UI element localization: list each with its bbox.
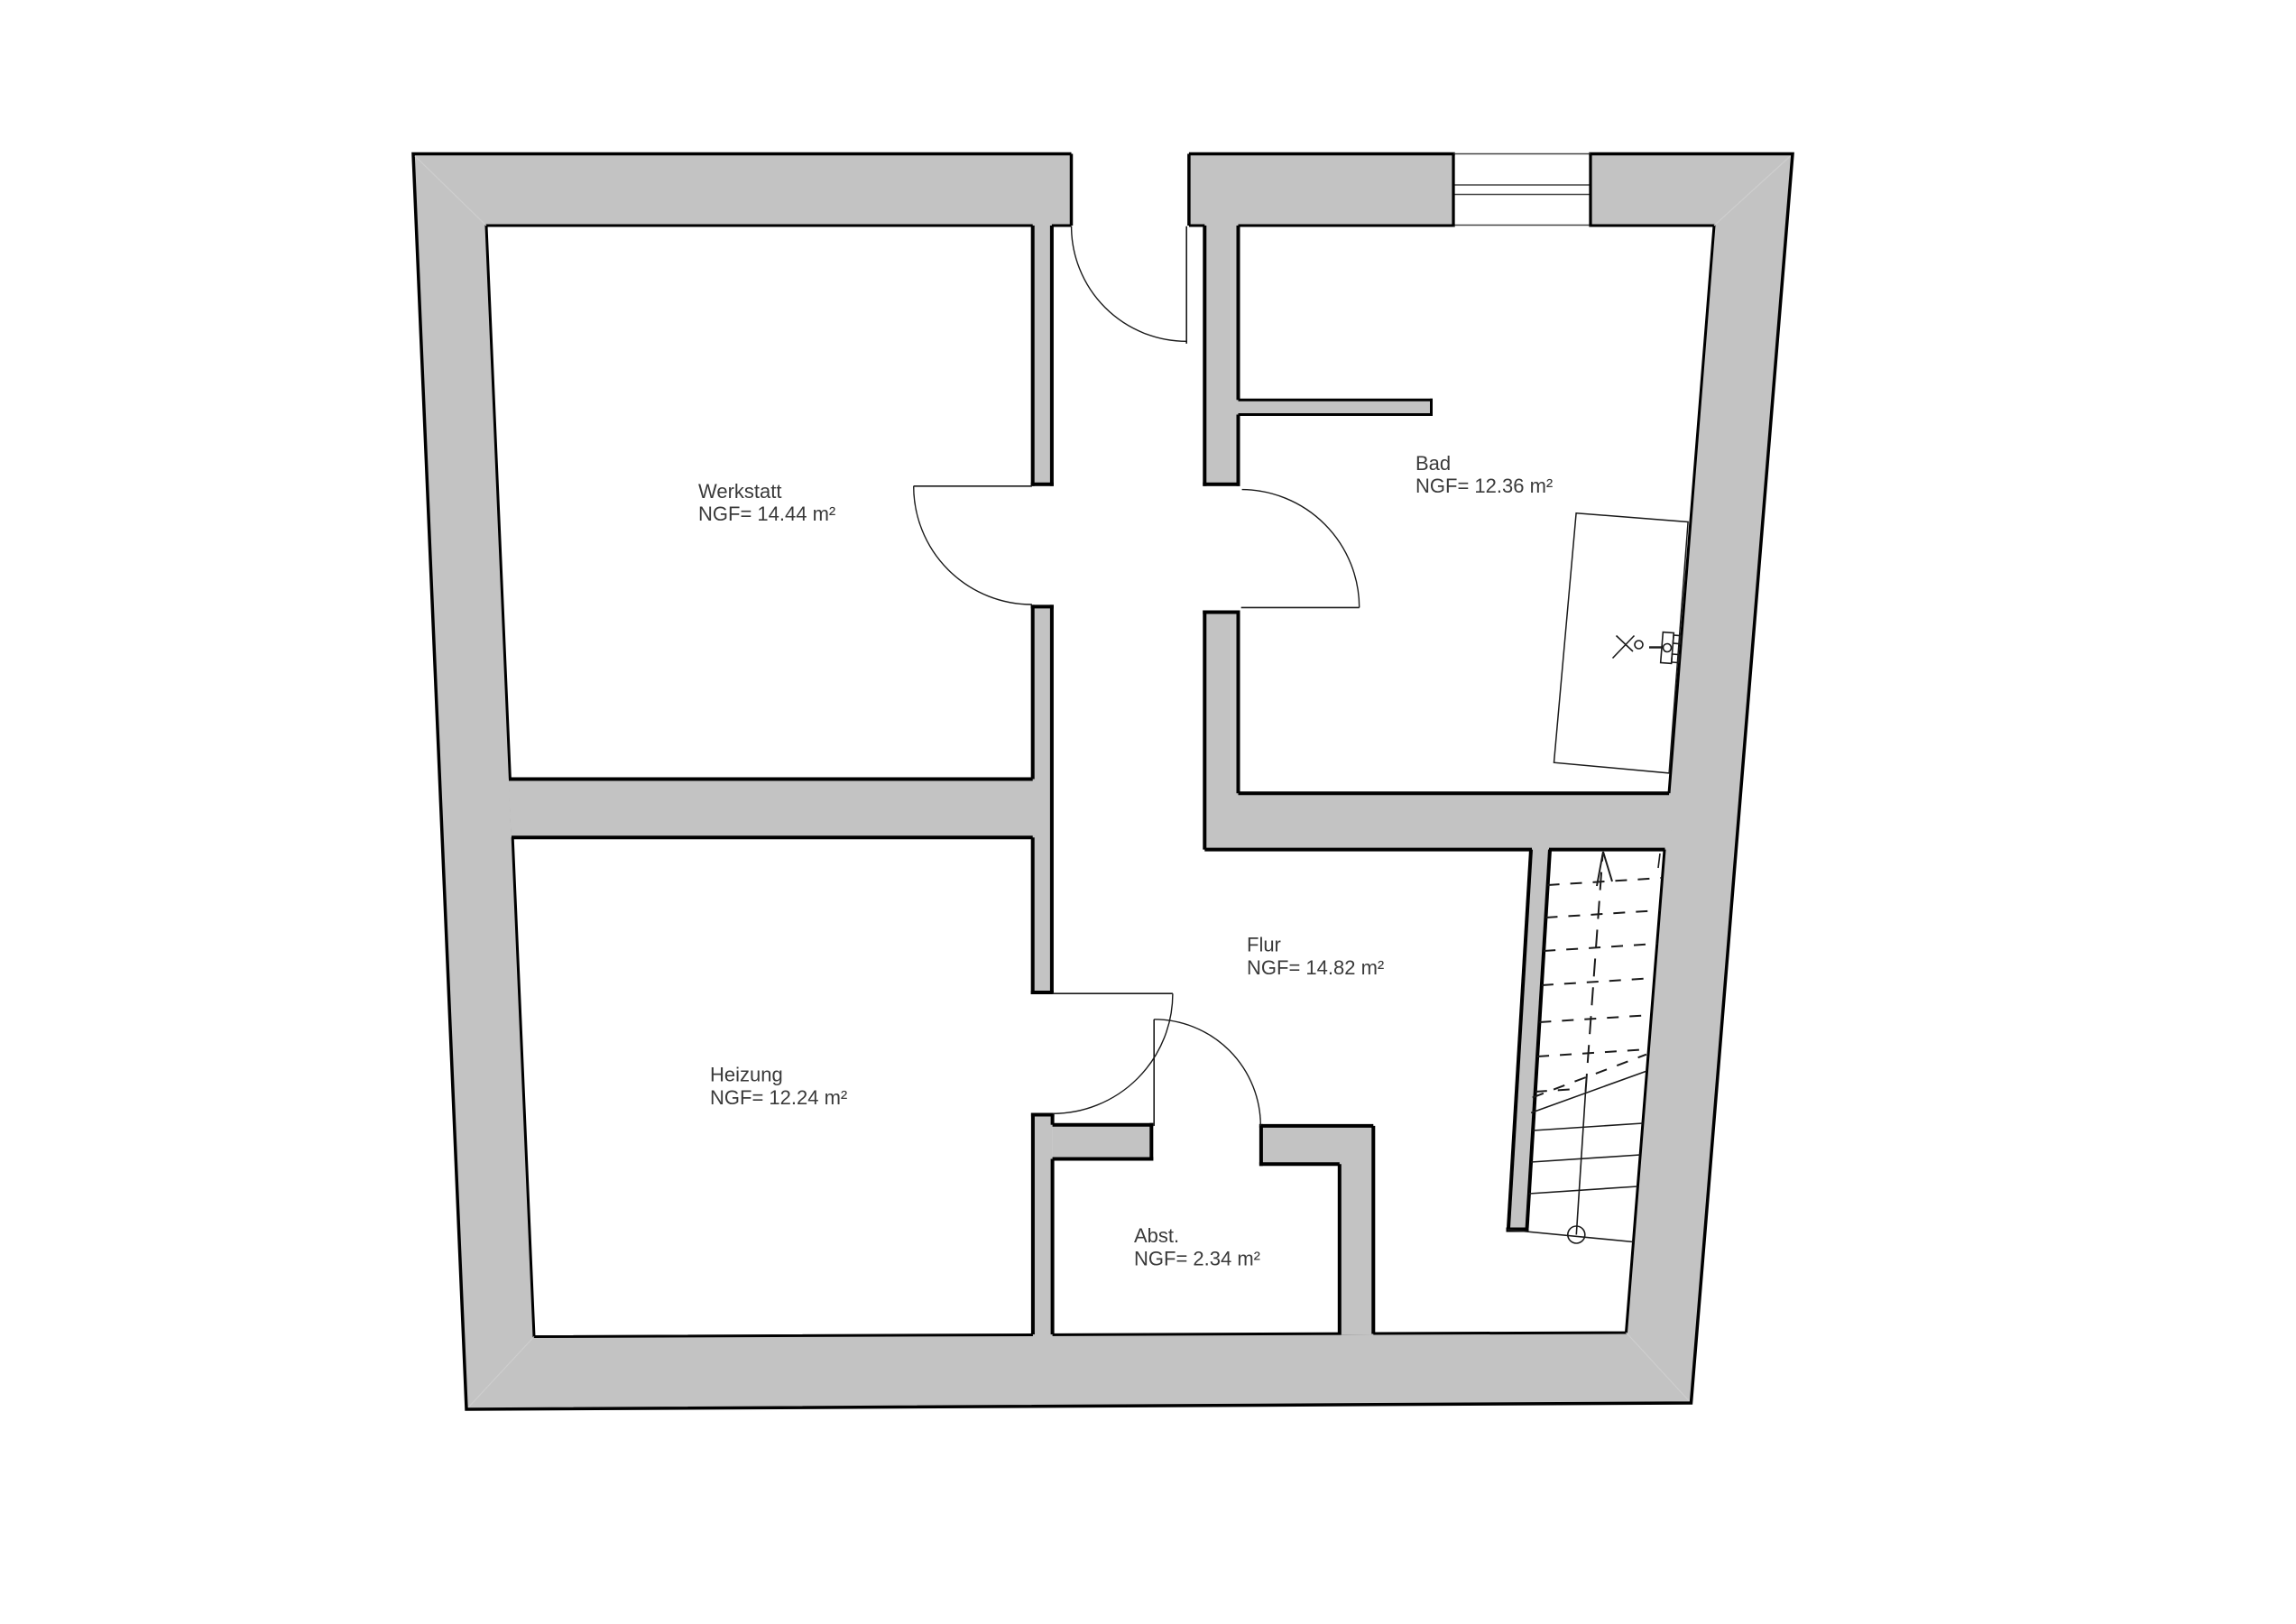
svg-text:Heizung: Heizung [710,1064,783,1086]
svg-text:NGF= 12.24 m²: NGF= 12.24 m² [710,1086,847,1109]
svg-text:Werkstatt: Werkstatt [698,480,782,503]
svg-text:NGF= 14.82 m²: NGF= 14.82 m² [1247,956,1384,979]
svg-text:Abst.: Abst. [1134,1224,1179,1247]
svg-text:Flur: Flur [1247,934,1281,956]
svg-text:NGF= 2.34 m²: NGF= 2.34 m² [1134,1248,1260,1270]
svg-text:Bad: Bad [1415,452,1451,475]
svg-text:NGF= 12.36 m²: NGF= 12.36 m² [1415,475,1553,497]
svg-text:NGF= 14.44 m²: NGF= 14.44 m² [698,503,835,525]
